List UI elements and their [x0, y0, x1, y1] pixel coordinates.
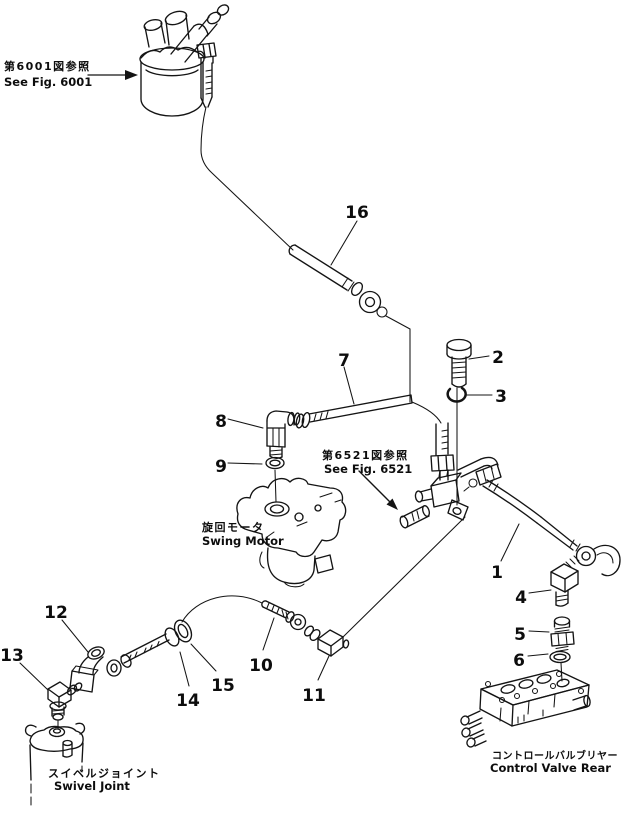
- swivel-joint-label-en: Swivel Joint: [54, 779, 130, 793]
- pipe-elbow-to-hose1: [458, 457, 501, 491]
- control-valve: [460, 670, 591, 748]
- elbow-4: [551, 556, 579, 606]
- callout-1: 1: [491, 563, 503, 583]
- elbow-11: [303, 625, 349, 656]
- fig6001-label-en: See Fig. 6001: [4, 75, 92, 89]
- callout-14: 14: [176, 691, 200, 711]
- callout-10: 10: [249, 656, 273, 676]
- hose16-to-valve-line: [386, 316, 410, 329]
- bolt-2: [447, 340, 471, 388]
- callout-16: 16: [345, 203, 369, 223]
- hose-nipple-6521: [399, 505, 431, 529]
- callout-6: 6: [513, 651, 525, 671]
- elbow-13: [48, 682, 83, 728]
- fig6521-arrow: [359, 471, 398, 510]
- callout-9: 9: [215, 457, 227, 477]
- fig6521-label-jp: 第6521図参照: [322, 448, 409, 462]
- control-valve-label-en: Control Valve Rear: [490, 761, 611, 775]
- o-ring-6: [550, 652, 570, 663]
- callout-15: 15: [211, 676, 235, 696]
- nipple-5: [551, 617, 574, 652]
- fig6521-label-en: See Fig. 6521: [324, 462, 412, 476]
- hose-curve-15-to-10: [182, 596, 262, 622]
- hose-1: [483, 480, 620, 576]
- parts-diagram: 1 2 3 4 5 6 7 8 9 10 11 12 13 14 15 16 第…: [0, 0, 628, 838]
- fig6001-arrow: [88, 70, 138, 80]
- callout-12: 12: [44, 603, 68, 623]
- o-ring-9: [266, 458, 284, 469]
- hose-12-to-15: [121, 634, 169, 663]
- fig6001-label-jp: 第6001図参照: [4, 59, 91, 73]
- filter-assembly: [140, 3, 230, 116]
- swing-motor-label-jp: 旋回モータ: [201, 520, 265, 534]
- fitting-14-15: [162, 617, 195, 648]
- callout-11: 11: [302, 686, 326, 706]
- elbow-8: [267, 411, 300, 458]
- callout-7: 7: [338, 351, 350, 371]
- hose-16: [289, 245, 387, 317]
- diagram-canvas: 1 2 3 4 5 6 7 8 9 10 11 12 13 14 15 16 第…: [0, 0, 628, 838]
- callout-8: 8: [215, 412, 227, 432]
- tube-7: [295, 395, 412, 429]
- sleeve-nut-12: [107, 653, 133, 676]
- callout-3: 3: [495, 387, 507, 407]
- tube-10: [262, 601, 306, 630]
- swing-motor-label-en: Swing Motor: [202, 534, 284, 548]
- callout-5: 5: [514, 625, 526, 645]
- callout-2: 2: [492, 348, 504, 368]
- center-valve-piping: [410, 329, 468, 520]
- oring9-to-motor-line: [275, 470, 276, 502]
- filter-to-hose-line: [201, 107, 293, 250]
- valve-to-elbow11-line: [343, 517, 465, 637]
- callout-13: 13: [0, 646, 24, 666]
- callout-4: 4: [515, 588, 527, 608]
